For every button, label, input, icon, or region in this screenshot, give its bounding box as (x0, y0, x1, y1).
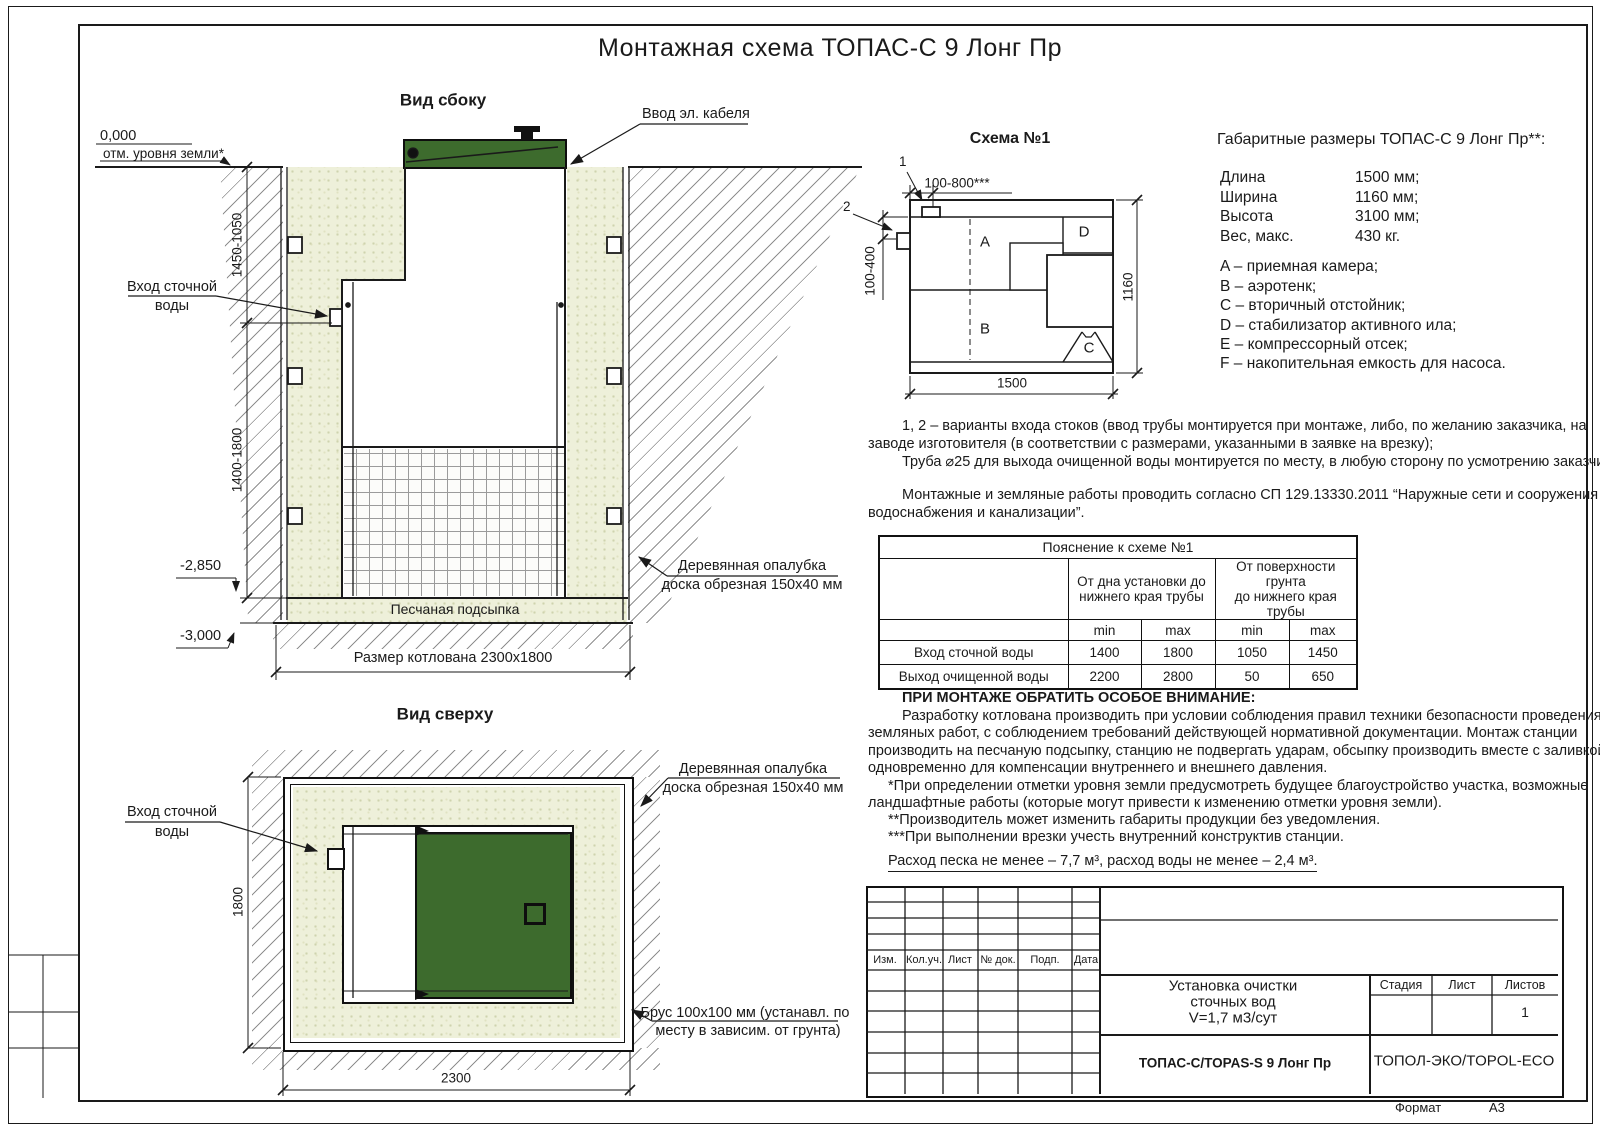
legend-d: D – стабилизатор активного ила; (1220, 317, 1456, 334)
table-row: Вход сточной воды 1400 1800 1050 1450 (879, 641, 1357, 665)
tb-col-podp: Подп. (1030, 954, 1059, 966)
formwork-label-1: Деревянная опалубка (678, 558, 826, 574)
tb-col-izm: Изм. (873, 954, 897, 966)
side-view-title: Вид сбоку (400, 90, 486, 109)
table-header-2: От поверхности грунтадо нижнего края тру… (1215, 559, 1357, 620)
tank-lower-section (344, 449, 564, 596)
warning-line-2: производить на песчаную подсыпку, станци… (868, 743, 1600, 759)
top-formwork-label-1: Деревянная опалубка (679, 761, 827, 777)
spec-key-3: Вес, макс. (1220, 228, 1294, 245)
top-hatch-top (252, 750, 660, 777)
schema-dim-top: 100-800*** (924, 175, 989, 190)
top-dim-length: 2300 (441, 1070, 471, 1085)
spec-key-2: Высота (1220, 208, 1273, 225)
table-corner (879, 559, 1068, 620)
legend-a: A – приемная камера; (1220, 258, 1378, 275)
format-label: Формат (1395, 1101, 1441, 1116)
note-1b: заводе изготовителя (в соответствии с ра… (868, 436, 1433, 452)
max-2: max (1289, 620, 1357, 641)
spec-key-1: Ширина (1220, 189, 1277, 206)
format-value: А3 (1489, 1101, 1505, 1116)
consumption-note: Расход песка не менее – 7,7 м³, расход в… (888, 853, 1317, 872)
level-m300: -3,000 (180, 628, 221, 644)
sheets-label: Листов (1505, 978, 1546, 992)
note-2b: водоснабжения и канализации”. (868, 505, 1085, 521)
footnote-1: ландшафтные работы (которые могут привес… (868, 795, 1442, 811)
spec-val-2: 3100 мм; (1355, 208, 1419, 225)
inlet-label-1: Вход сточной (127, 279, 217, 295)
compartment-b: B (980, 322, 990, 339)
cable-label: Ввод эл. кабеля (642, 106, 750, 122)
model-name: ТОПАС-С/TOPAS-S 9 Лонг Пр (1139, 1055, 1331, 1070)
schema-dim-left: 100-400 (862, 246, 877, 296)
note-1a: 1, 2 – варианты входа стоков (ввод трубы… (902, 418, 1587, 434)
level-m285: -2,850 (180, 558, 221, 574)
company-name: ТОПОЛ-ЭКО/TOPOL-ECO (1374, 1054, 1555, 1071)
top-view-title: Вид сверху (397, 704, 494, 723)
sheet-title: Монтажная схема ТОПАС-С 9 Лонг Пр (598, 34, 1062, 62)
compartment-c: C (1084, 341, 1095, 358)
sand-bed-label: Песчаная подсыпка (391, 602, 520, 618)
compartment-d: D (1079, 225, 1090, 242)
top-dim-width: 1800 (230, 887, 245, 917)
sheets-value: 1 (1521, 1005, 1529, 1021)
top-inlet-label-1: Вход сточной (127, 804, 217, 820)
formwork-label-2: доска обрезная 150x40 мм (662, 577, 843, 593)
spec-key-0: Длина (1220, 169, 1265, 186)
warning-title: ПРИ МОНТАЖЕ ОБРАТИТЬ ОСОБОЕ ВНИМАНИЕ: (902, 690, 1255, 706)
spec-val-1: 1160 мм; (1355, 189, 1418, 206)
table-header-1: От дна установки донижнего края трубы (1068, 559, 1215, 620)
table-title: Пояснение к схеме №1 (879, 536, 1357, 559)
beam-label-2: месту в зависим. от грунта) (655, 1023, 840, 1039)
beam-label-1: Брус 100x100 мм (устанавл. по (641, 1005, 850, 1021)
schema-dim-bottom: 1500 (997, 375, 1027, 390)
level-zero-note: отм. уровня земли* (103, 146, 224, 161)
tb-col-ndok: № док. (980, 954, 1015, 966)
tank-lid (403, 139, 567, 169)
warning-line-0: Разработку котлована производить при усл… (902, 708, 1600, 724)
schema-dim-right: 1160 (1120, 272, 1135, 301)
vent-cap-stem (521, 131, 533, 140)
tb-col-data: Дата (1074, 954, 1098, 966)
note-2a: Монтажные и земляные работы проводить со… (902, 487, 1598, 503)
dim-lower: 1400-1800 (229, 428, 244, 493)
tank-lid-top (415, 832, 572, 999)
warning-line-1: земляных работ, с соблюдением требований… (868, 725, 1577, 741)
pit-size-label: Размер котлована 2300x1800 (354, 650, 553, 666)
schema-marker-1: 1 (899, 154, 907, 169)
top-inlet-label-2: воды (155, 824, 189, 840)
spec-val-3: 430 кг. (1355, 228, 1400, 245)
table-row: Выход очищенной воды 2200 2800 50 650 (879, 665, 1357, 690)
legend-e: E – компрессорный отсек; (1220, 336, 1408, 353)
dim-upper: 1450-1050 (229, 213, 244, 278)
schema-marker-2: 2 (843, 199, 851, 214)
legend-c: C – вторичный отстойник; (1220, 297, 1405, 314)
compartment-f: F (1025, 257, 1034, 274)
level-zero: 0,000 (100, 128, 136, 144)
inlet-label-2: воды (155, 298, 189, 314)
min-1: min (1068, 620, 1141, 641)
drawing-sheet: Монтажная схема ТОПАС-С 9 Лонг Пр Вид сб… (0, 0, 1600, 1131)
compartment-a: A (980, 235, 990, 252)
doc-name-3: V=1,7 м3/сут (1189, 1011, 1277, 1028)
footnote-0: *При определении отметки уровня земли пр… (888, 778, 1588, 794)
footnote-3: ***При выполнении врезки учесть внутренн… (888, 829, 1344, 845)
min-2: min (1215, 620, 1289, 641)
specs-title: Габаритные размеры ТОПАС-С 9 Лонг Пр**: (1217, 131, 1545, 149)
tb-col-list: Лист (948, 954, 972, 966)
sheet-label: Лист (1448, 978, 1475, 992)
spec-val-0: 1500 мм; (1355, 169, 1419, 186)
stage-label: Стадия (1380, 978, 1423, 992)
explanation-table: Пояснение к схеме №1 От дна установки до… (878, 535, 1358, 690)
lid-hatch-square (524, 903, 546, 925)
legend-b: B – аэротенк; (1220, 278, 1316, 295)
legend-f: F – накопительная емкость для насоса. (1220, 355, 1506, 372)
top-formwork-label-2: доска обрезная 150x40 мм (663, 780, 844, 796)
compartment-e: E (1074, 282, 1084, 299)
max-1: max (1141, 620, 1215, 641)
footnote-2: **Производитель может изменить габариты … (888, 812, 1380, 828)
tb-col-koluch: Кол.уч. (906, 954, 942, 966)
warning-line-3: одновременно для компенсации внутреннего… (868, 760, 1327, 776)
schema-title: Схема №1 (970, 130, 1050, 148)
note-1c: Труба ⌀25 для выхода очищенной воды монт… (902, 454, 1600, 470)
inlet-stub-top (327, 848, 345, 870)
top-hatch-left (252, 777, 283, 1048)
earth-hatch-bottom (273, 623, 633, 649)
